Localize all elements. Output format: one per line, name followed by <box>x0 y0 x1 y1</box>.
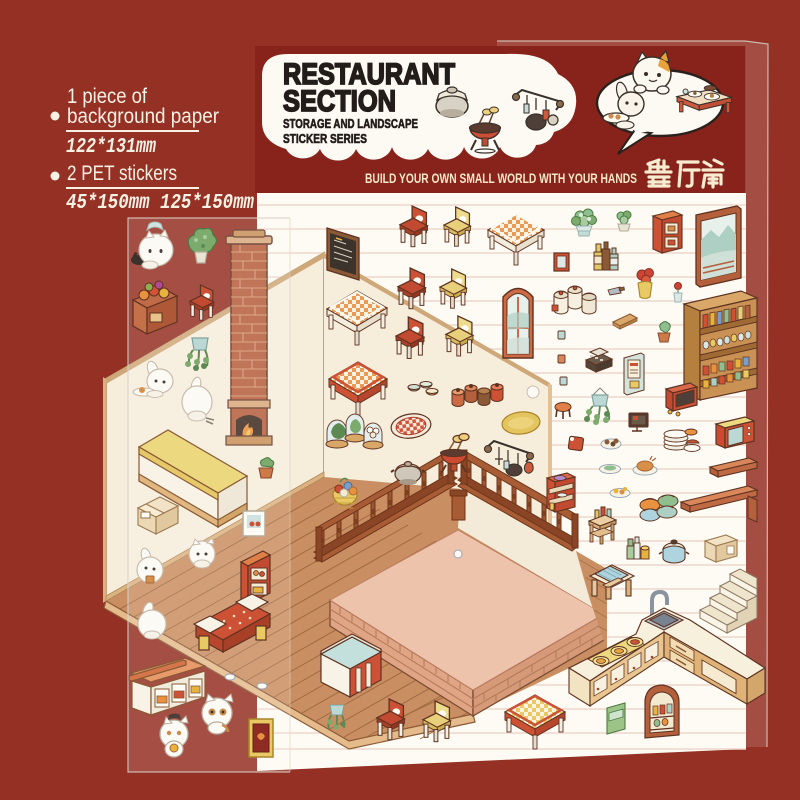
svg-text:SECTION: SECTION <box>283 85 396 118</box>
svg-text:45*150mm 125*150mm: 45*150mm 125*150mm <box>66 192 254 215</box>
svg-text:STORAGE AND LANDSCAPE: STORAGE AND LANDSCAPE <box>283 117 418 131</box>
svg-text:2 PET stickers: 2 PET stickers <box>67 162 177 185</box>
svg-text:BUILD YOUR OWN SMALL WORLD WIT: BUILD YOUR OWN SMALL WORLD WITH YOUR HAN… <box>365 171 637 186</box>
svg-text:background paper: background paper <box>67 105 219 128</box>
svg-text:STICKER SERIES: STICKER SERIES <box>283 132 367 146</box>
svg-text:122*131mm: 122*131mm <box>66 136 156 159</box>
